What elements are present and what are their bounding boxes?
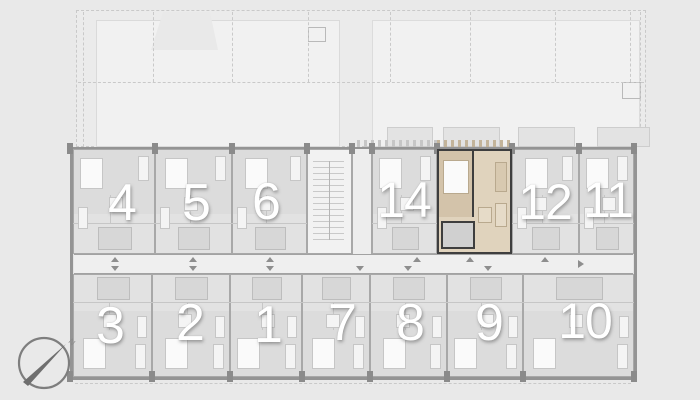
unit-label-11: 11 [583,171,633,229]
unit-13-table [478,207,492,223]
unit-13-bed [443,160,469,194]
unit-13-bathroom [441,221,475,249]
unit-label-5: 5 [182,173,210,233]
unit-13-wardrobe [495,162,507,192]
unit-label-10: 10 [558,292,612,350]
north-compass-icon: N [14,332,78,394]
unit-label-3: 3 [96,296,124,356]
unit-label-14: 14 [377,171,431,229]
unit-label-7: 7 [328,293,356,353]
unit-label-2: 2 [176,293,204,353]
unit-label-4: 4 [108,173,136,233]
unit-label-1: 1 [254,295,282,355]
compass-north-label: N [67,337,77,348]
unit-label-8: 8 [396,293,424,353]
unit-label-9: 9 [475,293,503,353]
unit-label-12: 12 [518,173,572,231]
unit-numbers: 4561413121132178910 [0,0,700,400]
floor-plan-canvas: 4561413121132178910 N [0,0,700,400]
unit-13-sofa [495,203,507,227]
unit-label-6: 6 [252,172,280,232]
